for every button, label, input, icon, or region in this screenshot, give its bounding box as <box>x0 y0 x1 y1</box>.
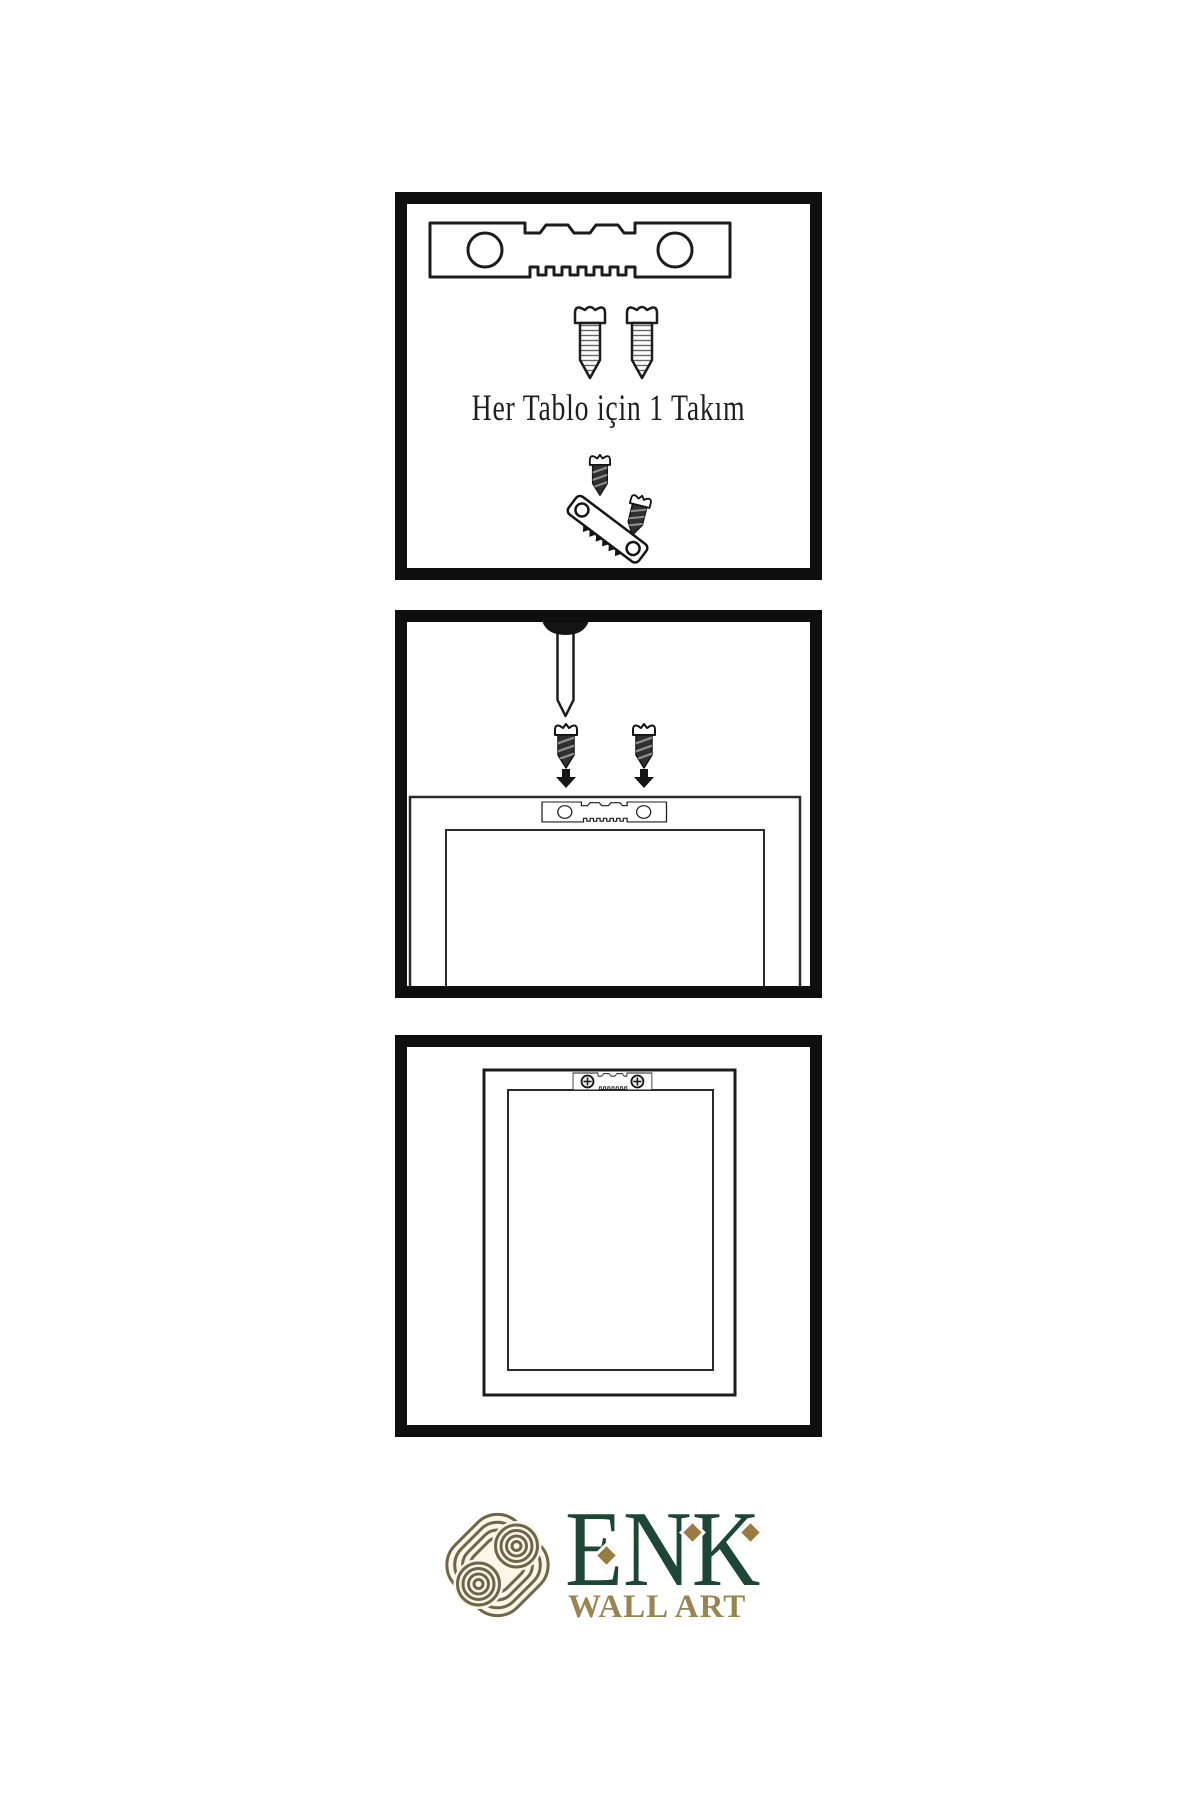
down-arrow-icon <box>556 769 576 788</box>
installed-screw-head-icon <box>582 1076 594 1088</box>
panel-hung-frame <box>395 1035 822 1437</box>
down-arrow-icon <box>634 769 654 788</box>
panel1-caption: Her Tablo için 1 Takım <box>457 390 759 427</box>
frame-back-inner-outline <box>446 830 764 986</box>
wall-nail-icon <box>543 622 589 716</box>
installed-screw-head-icon <box>631 1076 643 1088</box>
knot-logo-icon <box>437 1505 558 1625</box>
dark-screw-icon <box>633 724 655 768</box>
panel-wall-mounting <box>395 610 822 998</box>
hung-frame-illustration <box>407 1047 810 1425</box>
screw-icon <box>627 307 657 378</box>
screw-into-hanger-assembly-icon <box>562 455 652 568</box>
brand-logo: ENK WALL ART <box>437 1505 817 1655</box>
dark-screw-icon <box>590 455 610 495</box>
hardware-kit-illustration <box>407 204 810 568</box>
instruction-sheet: Her Tablo için 1 Takım <box>0 0 1200 1800</box>
brand-name: ENK <box>565 1496 760 1604</box>
sawtooth-hanger-icon <box>430 223 730 277</box>
brand-subtitle: WALL ART <box>568 1591 746 1624</box>
picture-frame-inner-outline <box>508 1090 713 1370</box>
wall-mounting-illustration <box>407 622 810 986</box>
screw-icon <box>575 307 605 378</box>
dark-screw-icon <box>555 724 577 768</box>
panel-hardware-kit: Her Tablo için 1 Takım <box>395 192 822 580</box>
